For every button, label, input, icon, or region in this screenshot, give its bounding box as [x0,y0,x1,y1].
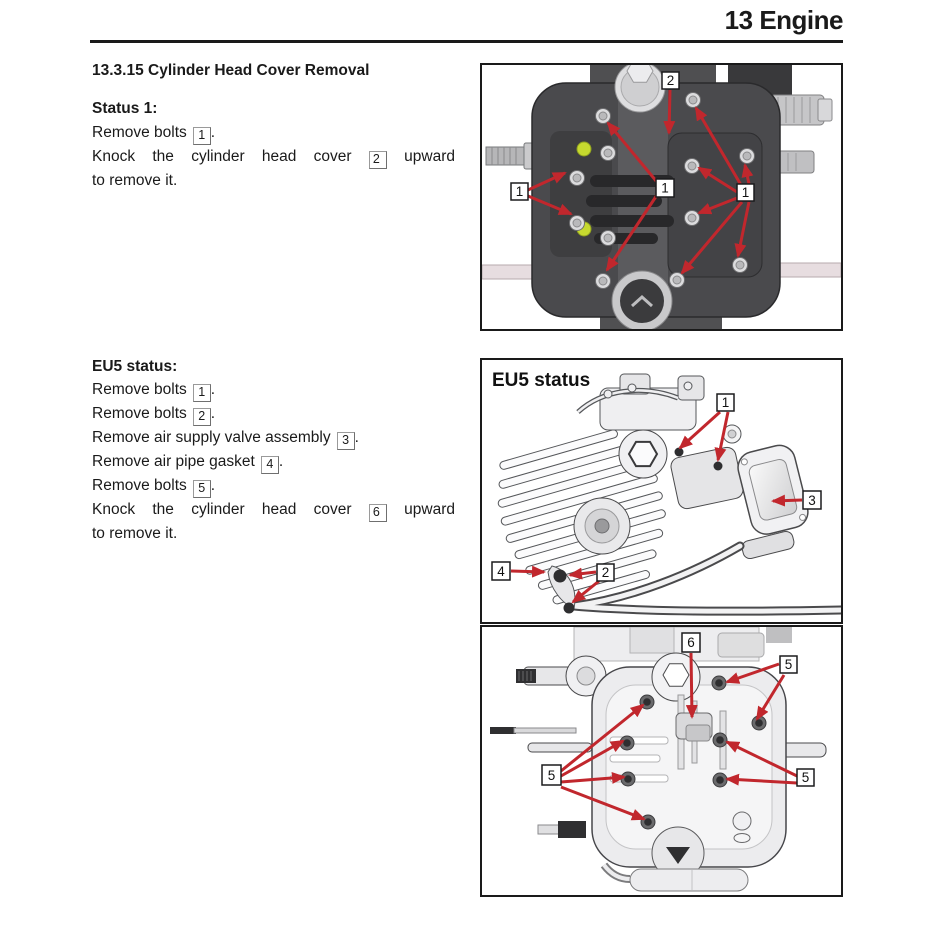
status1-heading: Status 1: [92,97,455,121]
ref-box-1: 1 [193,127,211,145]
fig1-callout-1-center: 1 [656,179,674,197]
fig2-callout-2: 2 [597,564,614,581]
ref-box-5: 5 [193,480,211,498]
fig1-callout-1-left-label: 1 [516,184,524,199]
eu5-step-6: Knock the cylinder head cover 6 upward [92,498,455,522]
fig3-callout-5-topright-label: 5 [785,657,793,672]
fig3-callout-6: 6 [682,633,700,652]
fig3-callout-5-right: 5 [797,769,814,786]
eu5-step-6-cont: to remove it. [92,522,455,545]
eu5-instructions: EU5 status: Remove bolts1. Remove bolts2… [92,355,455,545]
fig2-title: EU5 status [492,370,590,391]
fig2-callout-3: 3 [803,491,821,509]
fig3-callout-6-label: 6 [687,635,695,650]
fig3-callout-5-left-label: 5 [548,768,556,783]
fig2-callout-4: 4 [492,562,510,580]
ref-box-2: 2 [369,151,387,169]
status1-step-1: Remove bolts1. [92,121,455,145]
figure3-illustration: 6 5 5 5 [482,627,841,895]
figure2-illustration: EU5 status 1 3 4 2 [482,360,841,622]
pipe-bolt [564,603,575,614]
gasket-bolt [554,570,567,583]
ref-box-1: 1 [193,384,211,402]
figure1-illustration: 2 1 1 1 [482,65,841,329]
chapter-title: 13 Engine [90,5,843,36]
status1-step-2: Knock the cylinder head cover 2 upward [92,145,455,169]
header-rule [90,40,843,43]
figure-eu5-head-cover-bolts: 6 5 5 5 [480,625,843,897]
engine-head-line-art [485,374,841,614]
fig1-callout-2-label: 2 [667,73,675,88]
fig2-callout-1: 1 [717,394,734,411]
status1-instructions: Status 1: Remove bolts1. Knock the cylin… [92,97,455,193]
ref-box-3: 3 [337,432,355,450]
ref-box-4: 4 [261,456,279,474]
eu5-heading: EU5 status: [92,355,455,378]
fig1-callout-1-right-label: 1 [742,185,750,200]
ref-box-2: 2 [193,408,211,426]
head-bolt [675,448,684,457]
fig1-callout-1-center-label: 1 [661,181,669,196]
fig2-callout-3-label: 3 [808,493,816,508]
spark-plug-highlight [577,142,591,156]
fig1-callout-1-right: 1 [737,184,754,201]
manual-page: 13 Engine 13.3.15 Cylinder Head Cover Re… [0,0,929,929]
eu5-step-2: Remove bolts2. [92,402,455,426]
figure-eu5-cylinder-head: EU5 status 1 3 4 2 [480,358,843,624]
status1-step-2-cont: to remove it. [92,169,455,193]
fig2-callout-2-label: 2 [602,565,610,580]
eu5-step-4: Remove air pipe gasket4. [92,450,455,474]
fig2-callout-1-label: 1 [722,395,730,410]
fig3-callout-5-right-label: 5 [802,770,810,785]
fig3-callout-5-left: 5 [542,765,561,785]
eu5-step-5: Remove bolts5. [92,474,455,498]
fig3-callout-5-topright: 5 [780,656,797,673]
head-bolt [714,462,723,471]
eu5-step-1: Remove bolts1. [92,378,455,402]
fig2-callout-4-label: 4 [497,564,505,579]
figure-status1-top-view: 2 1 1 1 [480,63,843,331]
fig1-callout-2: 2 [662,72,679,89]
fig1-callout-1-left: 1 [511,183,528,200]
air-supply-valve-assembly [735,442,812,538]
ref-box-6: 6 [369,504,387,522]
oil-cap-hex [629,442,657,466]
eu5-step-3: Remove air supply valve assembly3. [92,426,455,450]
section-title: 13.3.15 Cylinder Head Cover Removal [92,62,455,80]
